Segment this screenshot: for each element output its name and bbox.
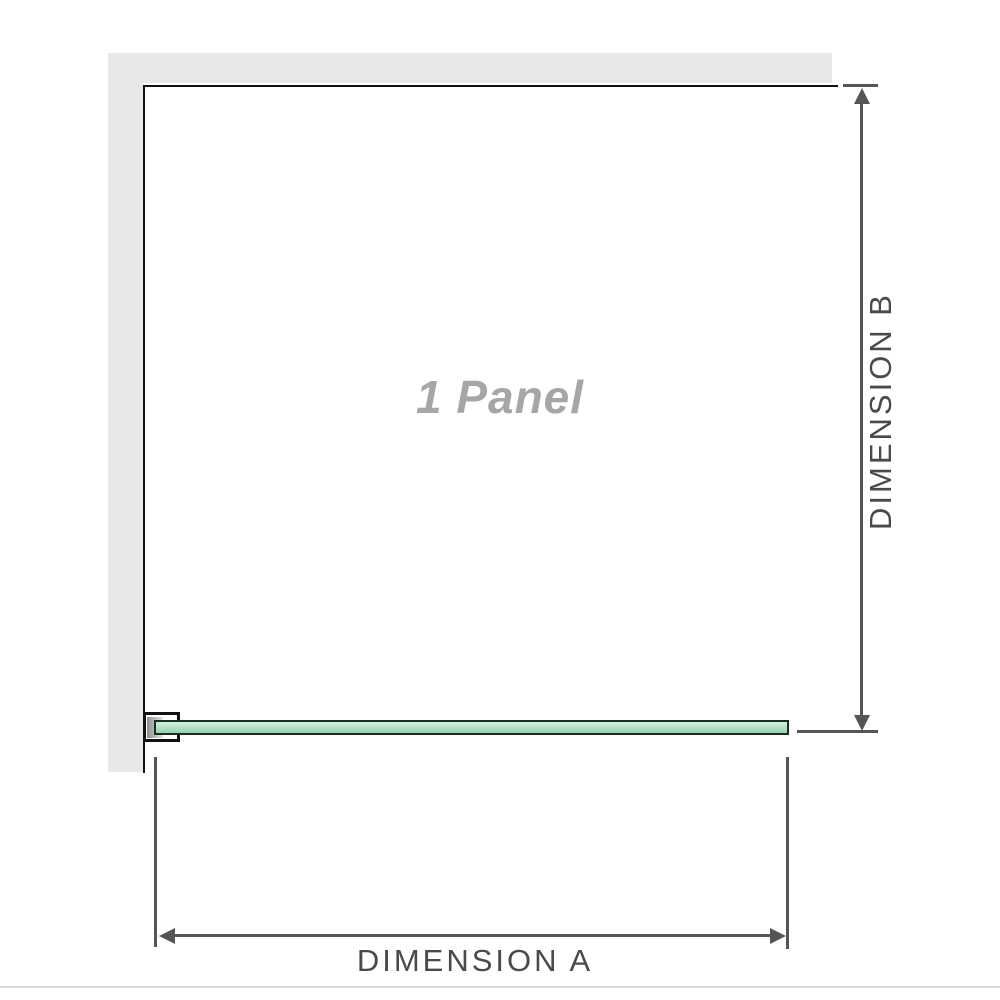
dimension-a-right-extension-line <box>786 757 789 949</box>
dimension-a-label: DIMENSION A <box>325 945 625 977</box>
panel-dimension-diagram: 1 Panel DIMENSION B DIMENSION A <box>0 0 1000 1000</box>
enclosure-left-edge-line <box>143 85 145 773</box>
glass-panel <box>154 720 789 735</box>
panel-count-watermark: 1 Panel <box>350 370 650 424</box>
dimension-b-arrow-down-icon <box>854 715 870 731</box>
dimension-a-left-extension-line <box>154 757 157 947</box>
dimension-b-label: DIMENSION B <box>865 261 897 561</box>
dimension-b-top-tick <box>843 84 878 87</box>
dimension-a-line <box>166 934 780 937</box>
dimension-a-arrow-left-icon <box>159 928 175 944</box>
wall-left-segment <box>108 53 143 772</box>
dimension-a-arrow-right-icon <box>770 928 786 944</box>
bottom-divider-line <box>0 986 1000 988</box>
enclosure-top-edge-line <box>143 85 838 87</box>
wall-top-segment <box>108 53 832 83</box>
dimension-b-arrow-up-icon <box>854 88 870 104</box>
